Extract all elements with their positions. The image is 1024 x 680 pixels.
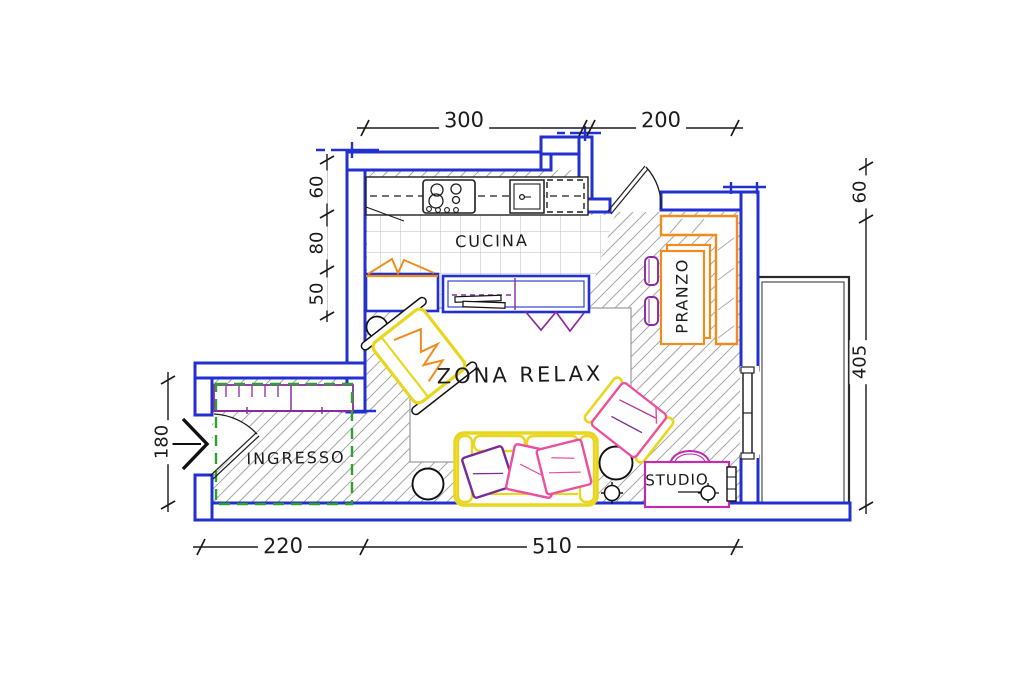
- dim-top-200: 200: [636, 108, 687, 133]
- window-right: [740, 366, 759, 459]
- dim-line-right-chain: [859, 158, 873, 514]
- cooktop-icon: [423, 180, 475, 213]
- label-dining: PRANZO: [673, 258, 692, 334]
- entry-arrow-icon: [170, 419, 207, 469]
- label-kitchen: CUCINA: [455, 231, 529, 251]
- sink-icon: [510, 180, 544, 213]
- dim-entry-180: 180: [152, 420, 173, 464]
- sofa: [455, 433, 597, 505]
- radiator: [727, 467, 736, 501]
- side-table-left: [413, 469, 444, 500]
- dim-left-80: 80: [307, 227, 328, 260]
- label-relax-zone: ZONA RELAX: [437, 362, 604, 389]
- wall-right-upper: [741, 192, 758, 370]
- dim-top-300: 300: [439, 108, 490, 133]
- wall-entry-top: [195, 363, 365, 378]
- balcony: [757, 277, 849, 507]
- pillow-pink-2: [536, 439, 592, 495]
- wall-left-lower: [195, 475, 212, 520]
- dim-left-60: 60: [307, 171, 328, 204]
- wardrobe: [214, 385, 353, 414]
- wall-kitchen-top: [347, 152, 549, 170]
- label-entry: INGRESSO: [246, 448, 346, 469]
- floor-plan-canvas: CUCINA PRANZO ZONA RELAX INGRESSO STUDIO…: [0, 0, 1024, 680]
- kitchen-door-swing-area: [609, 167, 661, 212]
- dim-left-50: 50: [307, 278, 328, 311]
- dim-right-60: 60: [850, 176, 871, 209]
- dim-bottom-220: 220: [258, 534, 309, 559]
- kitchen-counter: [366, 177, 588, 221]
- dim-bottom-510: 510: [527, 534, 578, 559]
- dim-right-405: 405: [850, 340, 871, 384]
- label-study: STUDIO: [645, 470, 709, 489]
